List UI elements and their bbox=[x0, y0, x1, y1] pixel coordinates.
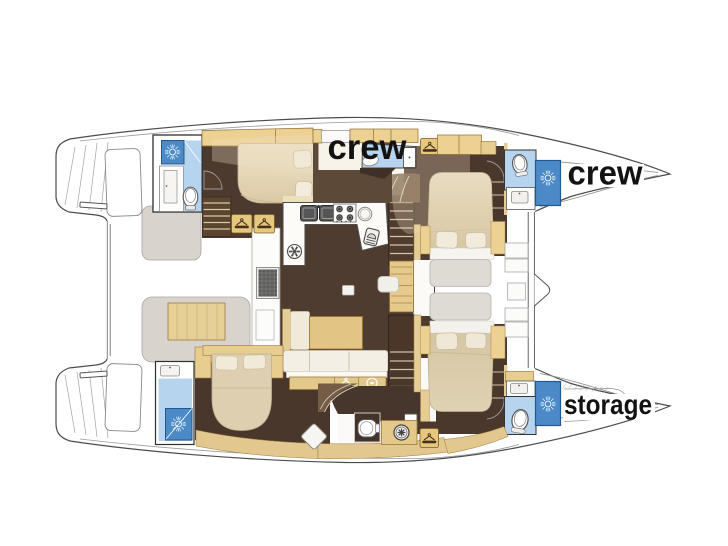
svg-text:crew: crew bbox=[328, 128, 408, 167]
svg-text:crew: crew bbox=[568, 155, 644, 193]
svg-text:storage: storage bbox=[564, 389, 652, 420]
